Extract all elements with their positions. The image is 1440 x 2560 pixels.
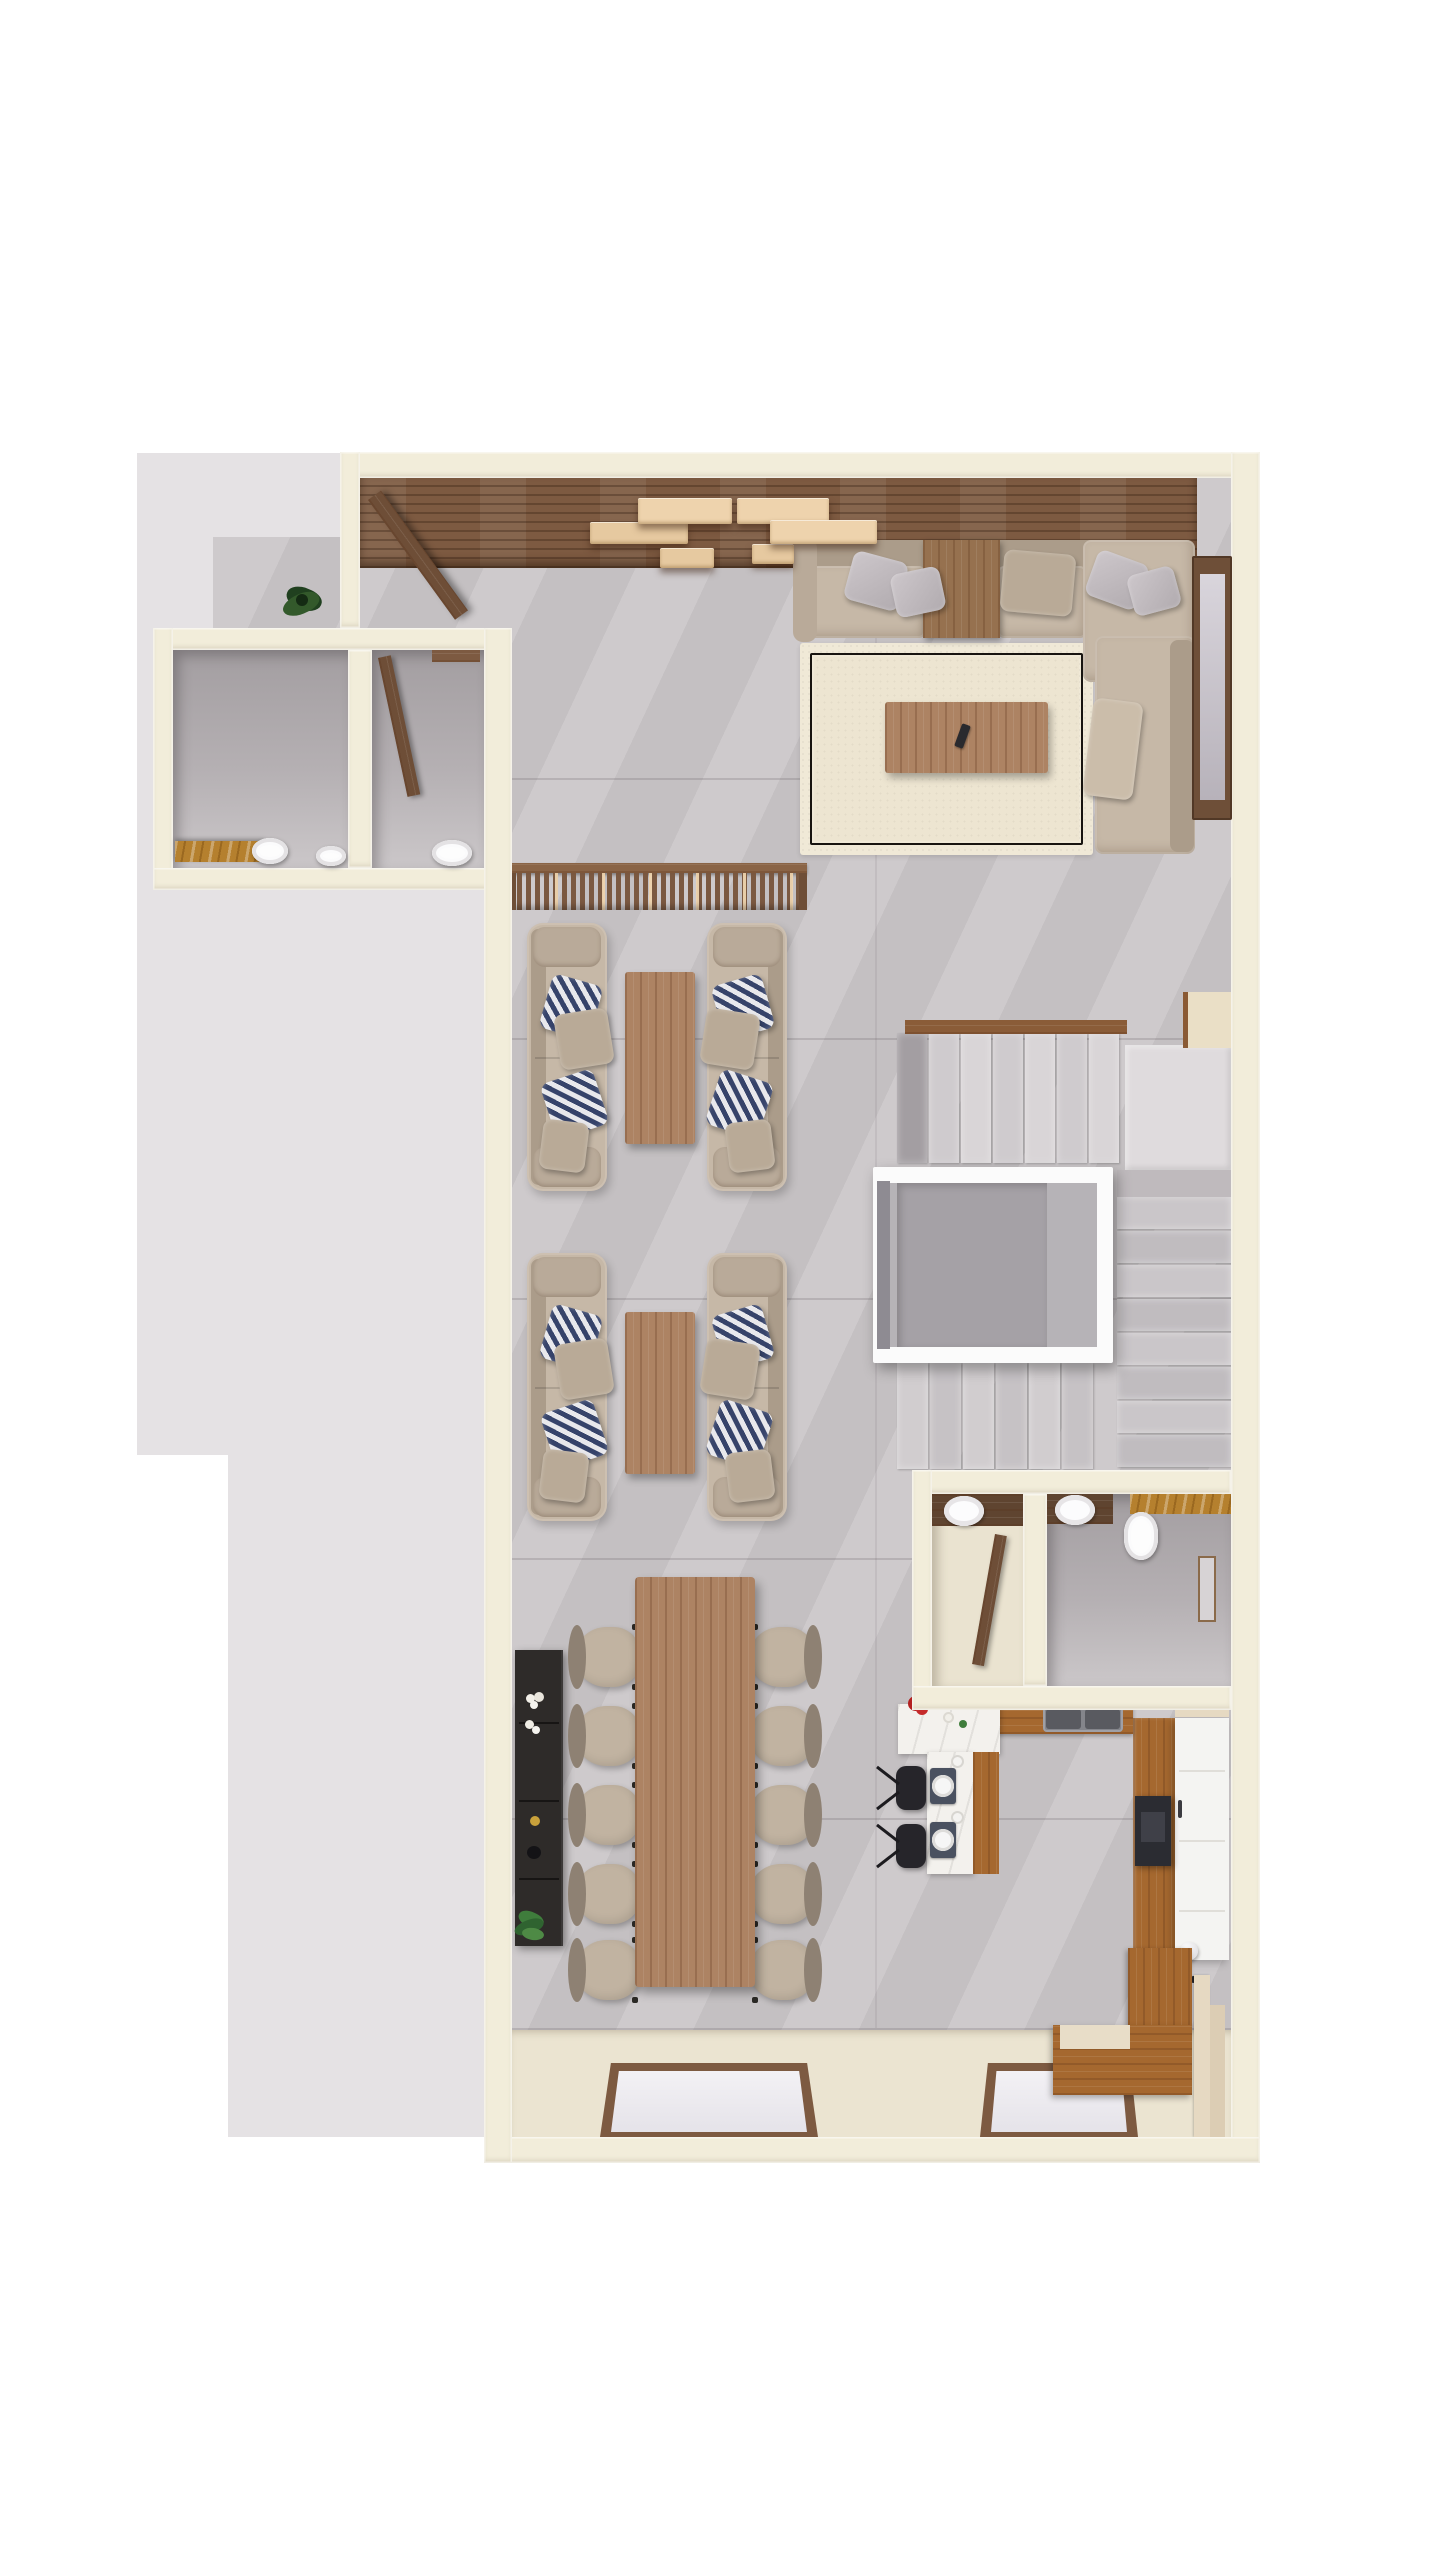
counter-dish (943, 1712, 954, 1723)
sideboard-bowl (527, 1846, 541, 1859)
sectional-arm (793, 538, 817, 642)
wc-block-wall-bottom (153, 868, 512, 890)
stair-tread (1117, 1231, 1231, 1263)
bath-block-wall-bottom (912, 1686, 1231, 1710)
counter-item-green (959, 1720, 967, 1728)
sofa-pillow (538, 1118, 590, 1173)
floating-shelf (590, 522, 688, 544)
dining-table (635, 1577, 755, 1987)
dining-chair (749, 1627, 815, 1687)
dining-chair (575, 1706, 641, 1766)
wc-block-wall-top (153, 628, 512, 650)
dark-appliance (1135, 1796, 1171, 1866)
lounge-sofa (527, 923, 607, 1191)
bath-block-wall-divider (1023, 1494, 1047, 1686)
sofa-pillow (999, 549, 1076, 617)
dinner-plate (932, 1775, 954, 1797)
sofa-pillow (538, 1448, 590, 1503)
floating-shelf (770, 520, 877, 544)
divider-top-edge (508, 863, 807, 873)
stair-landing (1125, 1045, 1231, 1170)
stair-tread (1062, 1363, 1093, 1469)
elevator-door-track (877, 1181, 890, 1349)
sideboard-flowers (526, 1692, 548, 1712)
stair-tread (996, 1363, 1027, 1469)
sofa-pillow (699, 1007, 761, 1071)
divider-slats (508, 873, 807, 910)
lounge-sofa (527, 1253, 607, 1521)
guest-wc-1-bidet (316, 846, 346, 866)
bottom-window (600, 2063, 818, 2137)
sofa-pillow (553, 1337, 615, 1401)
bath-block-wall-top (912, 1470, 1231, 1494)
bathroom-basin (1055, 1495, 1095, 1525)
sofa-headrest (713, 927, 781, 967)
side-window-frame (1192, 556, 1232, 820)
powder-room-basin (944, 1496, 984, 1526)
lounge-coffee-table (625, 1312, 695, 1474)
dining-chair (749, 1864, 815, 1924)
dining-chair (575, 1864, 641, 1924)
floating-shelf (752, 544, 794, 564)
stair-tread (1117, 1401, 1231, 1433)
sectional-chaise-back (1170, 640, 1194, 852)
guest-wc-1-toilet (252, 838, 288, 864)
elevator (873, 1167, 1113, 1363)
bar-stool (896, 1824, 926, 1868)
stair-tread (1117, 1435, 1231, 1467)
dining-chair (749, 1940, 815, 2000)
kitchen-island (1175, 1718, 1229, 1960)
dining-chair (575, 1940, 641, 2000)
sofa-headrest (533, 1257, 601, 1297)
wall-right (1231, 452, 1260, 2163)
cabinet-notch (1060, 2025, 1130, 2049)
dining-chair (575, 1627, 641, 1687)
bathroom-toilet (1124, 1512, 1158, 1560)
place-setting (930, 1822, 956, 1858)
stair-tread (1117, 1333, 1231, 1365)
floating-shelf (638, 498, 732, 524)
wall-left-main (484, 628, 512, 2163)
bath-block-wall-left (912, 1470, 932, 1710)
wc-block-wall-divider (348, 650, 372, 868)
counter-knob (951, 1755, 964, 1768)
guest-wc-1-interior (173, 650, 348, 868)
stair-tread (1117, 1299, 1231, 1331)
side-window-glass (1200, 574, 1225, 800)
stair-tread (1117, 1265, 1231, 1297)
stair-edge-trim (905, 1020, 1127, 1034)
wall-panel-step (1210, 2005, 1225, 2137)
breakfast-bar-cabinet (973, 1752, 999, 1874)
floating-shelf (660, 548, 714, 568)
wc-block-wall-left (153, 628, 173, 890)
guest-wc-2-toilet (432, 840, 472, 866)
bar-stool (896, 1766, 926, 1810)
dinner-plate (932, 1829, 954, 1851)
sideboard-candle (530, 1816, 540, 1826)
island-handle (1178, 1800, 1182, 1818)
lounge-sofa (707, 1253, 787, 1521)
wall-panel-step (1194, 1975, 1210, 2137)
wall-corridor-left (340, 452, 360, 628)
stair-tread (897, 1033, 927, 1163)
sofa-pillow (724, 1448, 776, 1503)
place-setting (930, 1768, 956, 1804)
elevator-cab-floor (897, 1183, 1047, 1347)
sideboard-flowers (523, 1720, 545, 1738)
sofa-pillow (699, 1337, 761, 1401)
dining-chair (749, 1785, 815, 1845)
corner-cabinet-vertical (1128, 1948, 1192, 2030)
stair-tread (1029, 1363, 1060, 1469)
window-glass (611, 2071, 807, 2132)
stair-tread (930, 1363, 961, 1469)
stair-half-landing (1117, 1170, 1231, 1197)
dining-chair (575, 1785, 641, 1845)
lounge-sofa (707, 923, 787, 1191)
stair-tread (1117, 1197, 1231, 1229)
slatted-wood-divider (508, 863, 807, 910)
dining-chair (749, 1706, 815, 1766)
stair-tread (1057, 1033, 1087, 1163)
sofa-headrest (713, 1257, 781, 1297)
sofa-headrest (533, 927, 601, 967)
stair-tread (1117, 1367, 1231, 1399)
amber-marble-counter (1130, 1494, 1231, 1514)
stair-tread (929, 1033, 959, 1163)
stair-side-wall (1183, 992, 1231, 1048)
floor-plan-render (0, 0, 1440, 2560)
stair-tread (963, 1363, 994, 1469)
guest-wc-2-shelf (432, 650, 480, 662)
sideboard-plant (514, 1906, 550, 1946)
wall-bottom (484, 2137, 1260, 2163)
lounge-coffee-table (625, 972, 695, 1144)
stair-tread (1025, 1033, 1055, 1163)
tile-seam (512, 1038, 1231, 1040)
sofa-pillow (724, 1118, 776, 1173)
stair-tread (897, 1363, 928, 1469)
stair-tread (961, 1033, 991, 1163)
stair-tread (993, 1033, 1023, 1163)
bathroom-wall-niche (1198, 1556, 1216, 1622)
stair-tread (1089, 1033, 1119, 1163)
corner-cabinet-base (1053, 2025, 1192, 2095)
wall-top (340, 452, 1260, 478)
sofa-pillow (553, 1007, 615, 1071)
